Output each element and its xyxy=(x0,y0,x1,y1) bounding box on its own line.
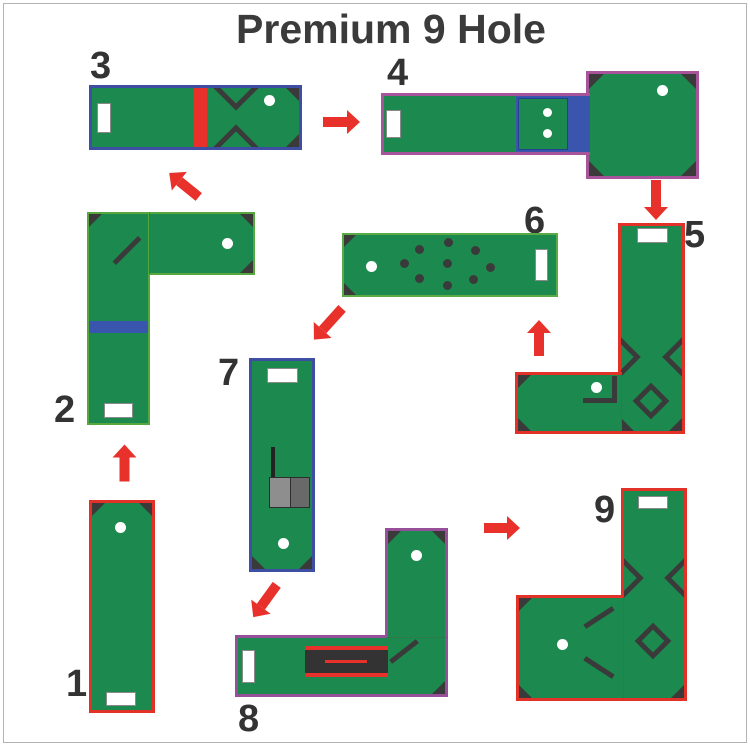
hole-9-cup-icon xyxy=(557,639,568,650)
arrow-head xyxy=(527,320,551,333)
diamond-block-icon xyxy=(635,623,672,660)
edge-chevron-icon xyxy=(662,337,685,377)
diagonal-wall-icon xyxy=(583,606,614,629)
corner-bumper-icon xyxy=(432,531,445,544)
hole-3-label: 3 xyxy=(90,47,111,85)
hole-5-fairway-vertical xyxy=(618,223,685,434)
edge-chevron-icon xyxy=(664,558,687,598)
hole-8-fairway-horizontal xyxy=(235,635,448,697)
corner-bumper-icon xyxy=(681,74,696,89)
edge-chevron-icon xyxy=(621,558,644,598)
grey-ramp-icon xyxy=(269,477,310,508)
corner-bumper-icon xyxy=(432,681,445,694)
corner-bumper-icon xyxy=(388,531,401,544)
bump-dot-icon xyxy=(469,275,478,284)
corner-bumper-icon xyxy=(299,556,312,569)
hole-2-label: 2 xyxy=(54,391,75,429)
arrow-tail xyxy=(323,117,347,127)
arrow-tail xyxy=(534,333,544,356)
hole-1-cup-icon xyxy=(115,522,126,533)
corner-bumper-icon xyxy=(519,685,532,698)
hole-8-tee-pad xyxy=(242,650,255,683)
corner-bumper-icon xyxy=(92,503,105,516)
corner-bumper-icon xyxy=(518,375,531,388)
corner-bumper-icon xyxy=(621,418,634,431)
corner-wall-icon xyxy=(583,398,617,403)
arrow-4-to-5-icon xyxy=(644,180,668,220)
hole-7-fairway xyxy=(249,358,315,572)
tunnel-ramp-icon xyxy=(305,646,388,677)
corner-bumper-icon xyxy=(139,503,152,516)
diamond-block-icon xyxy=(633,383,670,420)
corner-bumper-icon xyxy=(252,556,265,569)
premium-9-hole-diagram: Premium 9 Hole 1 2 3 4 xyxy=(0,0,750,747)
hole-4-fairway xyxy=(381,93,590,155)
corner-bumper-icon xyxy=(671,685,684,698)
corner-bumper-icon xyxy=(240,260,253,273)
hole-2-fairway-horizontal xyxy=(149,212,255,275)
edge-chevron-icon xyxy=(618,337,641,377)
arrow-head xyxy=(113,445,137,458)
arrow-tail xyxy=(120,458,130,482)
arrow-head xyxy=(644,207,668,220)
hole-4-green-square xyxy=(586,71,699,179)
hole-3-fairway xyxy=(89,85,302,150)
hole-8-cup-icon xyxy=(411,550,422,561)
hole-2-fairway-vertical xyxy=(87,212,150,425)
chevron-gate-icon xyxy=(213,85,258,111)
arrow-3-to-4-icon xyxy=(323,110,360,134)
hole-1-label: 1 xyxy=(66,665,87,703)
corner-bumper-icon xyxy=(286,134,299,147)
blue-speed-bump-icon xyxy=(89,321,148,333)
hole-5-fairway-horizontal xyxy=(515,372,622,434)
bridge-ramp-pad xyxy=(518,98,568,150)
corner-bumper-icon xyxy=(286,88,299,101)
hole-9-green-square xyxy=(516,595,624,701)
arrow-head xyxy=(347,110,360,134)
arrow-1-to-2-icon xyxy=(113,445,137,482)
hole-4-cup-icon xyxy=(657,85,668,96)
hole-7-cup-icon xyxy=(278,538,289,549)
hole-4-label: 4 xyxy=(387,54,408,92)
ramp-dot-icon xyxy=(543,108,552,117)
corner-bumper-icon xyxy=(589,74,604,89)
diagonal-wall-icon xyxy=(583,656,614,679)
arrow-8-to-9-icon xyxy=(484,516,520,540)
corner-bumper-icon xyxy=(589,161,604,176)
red-speed-bump-icon xyxy=(194,88,207,147)
bump-dot-icon xyxy=(471,246,480,255)
hole-7-tee-pad xyxy=(267,368,298,383)
hole-2-cup-icon xyxy=(222,238,233,249)
chevron-gate-icon xyxy=(213,124,258,150)
grey-ramp-left-half xyxy=(270,478,291,507)
bump-dot-icon xyxy=(443,259,452,268)
corner-bumper-icon xyxy=(89,214,102,227)
arrow-tail xyxy=(484,523,507,533)
tunnel-center-line xyxy=(325,660,367,663)
bump-dot-icon xyxy=(415,274,424,283)
diagonal-wall-icon xyxy=(113,236,142,265)
corner-bumper-icon xyxy=(519,598,532,611)
hole-8-label: 8 xyxy=(238,700,259,738)
arrow-head xyxy=(507,516,520,540)
hole-9-fairway-vertical xyxy=(621,488,687,701)
hole-1-tee-pad xyxy=(106,692,136,706)
hole-5-label: 5 xyxy=(684,216,705,254)
guide-wall-icon xyxy=(271,447,275,480)
arrow-tail xyxy=(176,177,202,201)
hole-5-tee-pad xyxy=(637,228,668,243)
bump-dot-icon xyxy=(444,238,453,247)
arrow-tail xyxy=(651,180,661,207)
corner-bumper-icon xyxy=(669,418,682,431)
hole-6-tee-pad xyxy=(535,249,548,281)
page-title: Premium 9 Hole xyxy=(0,6,750,53)
corner-bumper-icon xyxy=(518,418,531,431)
corner-bumper-icon xyxy=(240,214,253,227)
hole-6-cup-icon xyxy=(366,261,377,272)
bump-dot-icon xyxy=(415,245,424,254)
hole-1-fairway xyxy=(89,500,155,713)
hole-7-label: 7 xyxy=(218,354,239,392)
hole-4-tee-pad xyxy=(386,110,401,138)
hole-3-cup-icon xyxy=(264,95,275,106)
bump-dot-icon xyxy=(486,263,495,272)
bump-dot-icon xyxy=(443,281,452,290)
hole-3-tee-pad xyxy=(97,103,111,133)
corner-bumper-icon xyxy=(681,161,696,176)
hole-5-cup-icon xyxy=(591,382,602,393)
bump-dot-icon xyxy=(400,259,409,268)
corner-bumper-icon xyxy=(344,235,356,247)
hole-6-fairway xyxy=(342,233,558,297)
arrow-5-to-6-icon xyxy=(527,320,551,356)
hole-8-fairway-vertical xyxy=(385,528,448,638)
ramp-dot-icon xyxy=(543,129,552,138)
diagonal-wall-icon xyxy=(389,639,419,664)
hole-2-tee-pad xyxy=(104,403,133,418)
corner-bumper-icon xyxy=(344,283,356,295)
hole-9-label: 9 xyxy=(594,491,615,529)
hole-9-tee-pad xyxy=(638,496,668,509)
